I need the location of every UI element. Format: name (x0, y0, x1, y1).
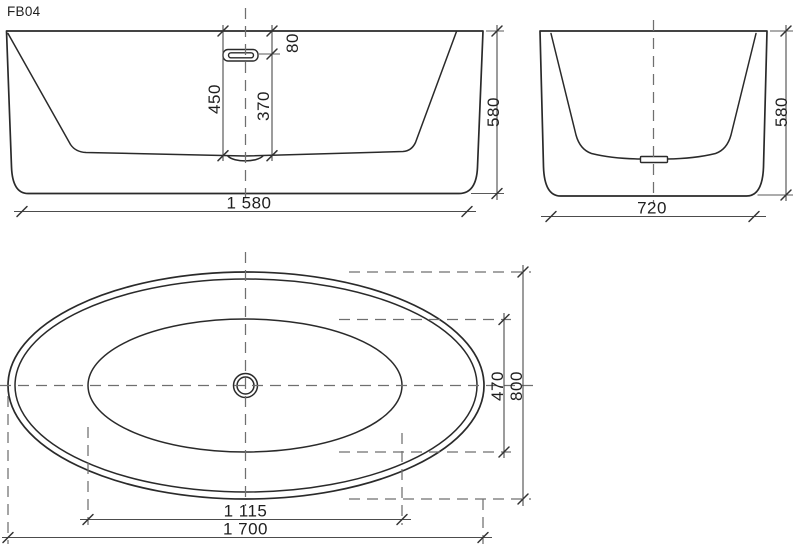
front-dimension-80-370: 80 370 (254, 25, 302, 161)
front-view: 450 80 370 580 1 580 (7, 8, 505, 217)
plan-dimension-1700: 1 700 (2, 520, 492, 543)
side-tub-inner-wall-left (551, 34, 641, 160)
dim-label-front-580: 580 (484, 97, 503, 127)
dim-label-370: 370 (254, 91, 273, 121)
side-view: 720 580 (540, 20, 793, 222)
drawing-code: FB04 (7, 4, 41, 19)
plan-dimension-800: 800 (507, 265, 528, 506)
dim-label-720: 720 (637, 199, 667, 218)
dim-label-1115: 1 115 (224, 502, 268, 521)
dim-label-470: 470 (488, 371, 507, 401)
dim-label-1580: 1 580 (226, 194, 271, 213)
side-dimension-720: 720 (541, 199, 766, 222)
front-dimension-580: 580 (471, 25, 504, 200)
side-drain-outline (641, 157, 668, 163)
dim-label-side-580: 580 (772, 97, 791, 127)
drawing-sheet: FB04 450 80 370 (0, 0, 800, 547)
dim-label-1700: 1 700 (223, 520, 268, 539)
front-dimension-1580: 1 580 (14, 194, 476, 217)
technical-drawing: FB04 450 80 370 (0, 0, 800, 547)
dim-label-80: 80 (283, 33, 302, 53)
plan-dimension-470: 470 (488, 313, 509, 458)
dim-label-800: 800 (507, 371, 526, 401)
side-tub-inner-wall-right (667, 34, 756, 160)
plan-view: 470 800 1 115 1 700 (0, 252, 533, 544)
dim-label-450: 450 (205, 84, 224, 114)
front-dimension-450: 450 (205, 25, 228, 161)
overflow-slot (229, 53, 254, 58)
